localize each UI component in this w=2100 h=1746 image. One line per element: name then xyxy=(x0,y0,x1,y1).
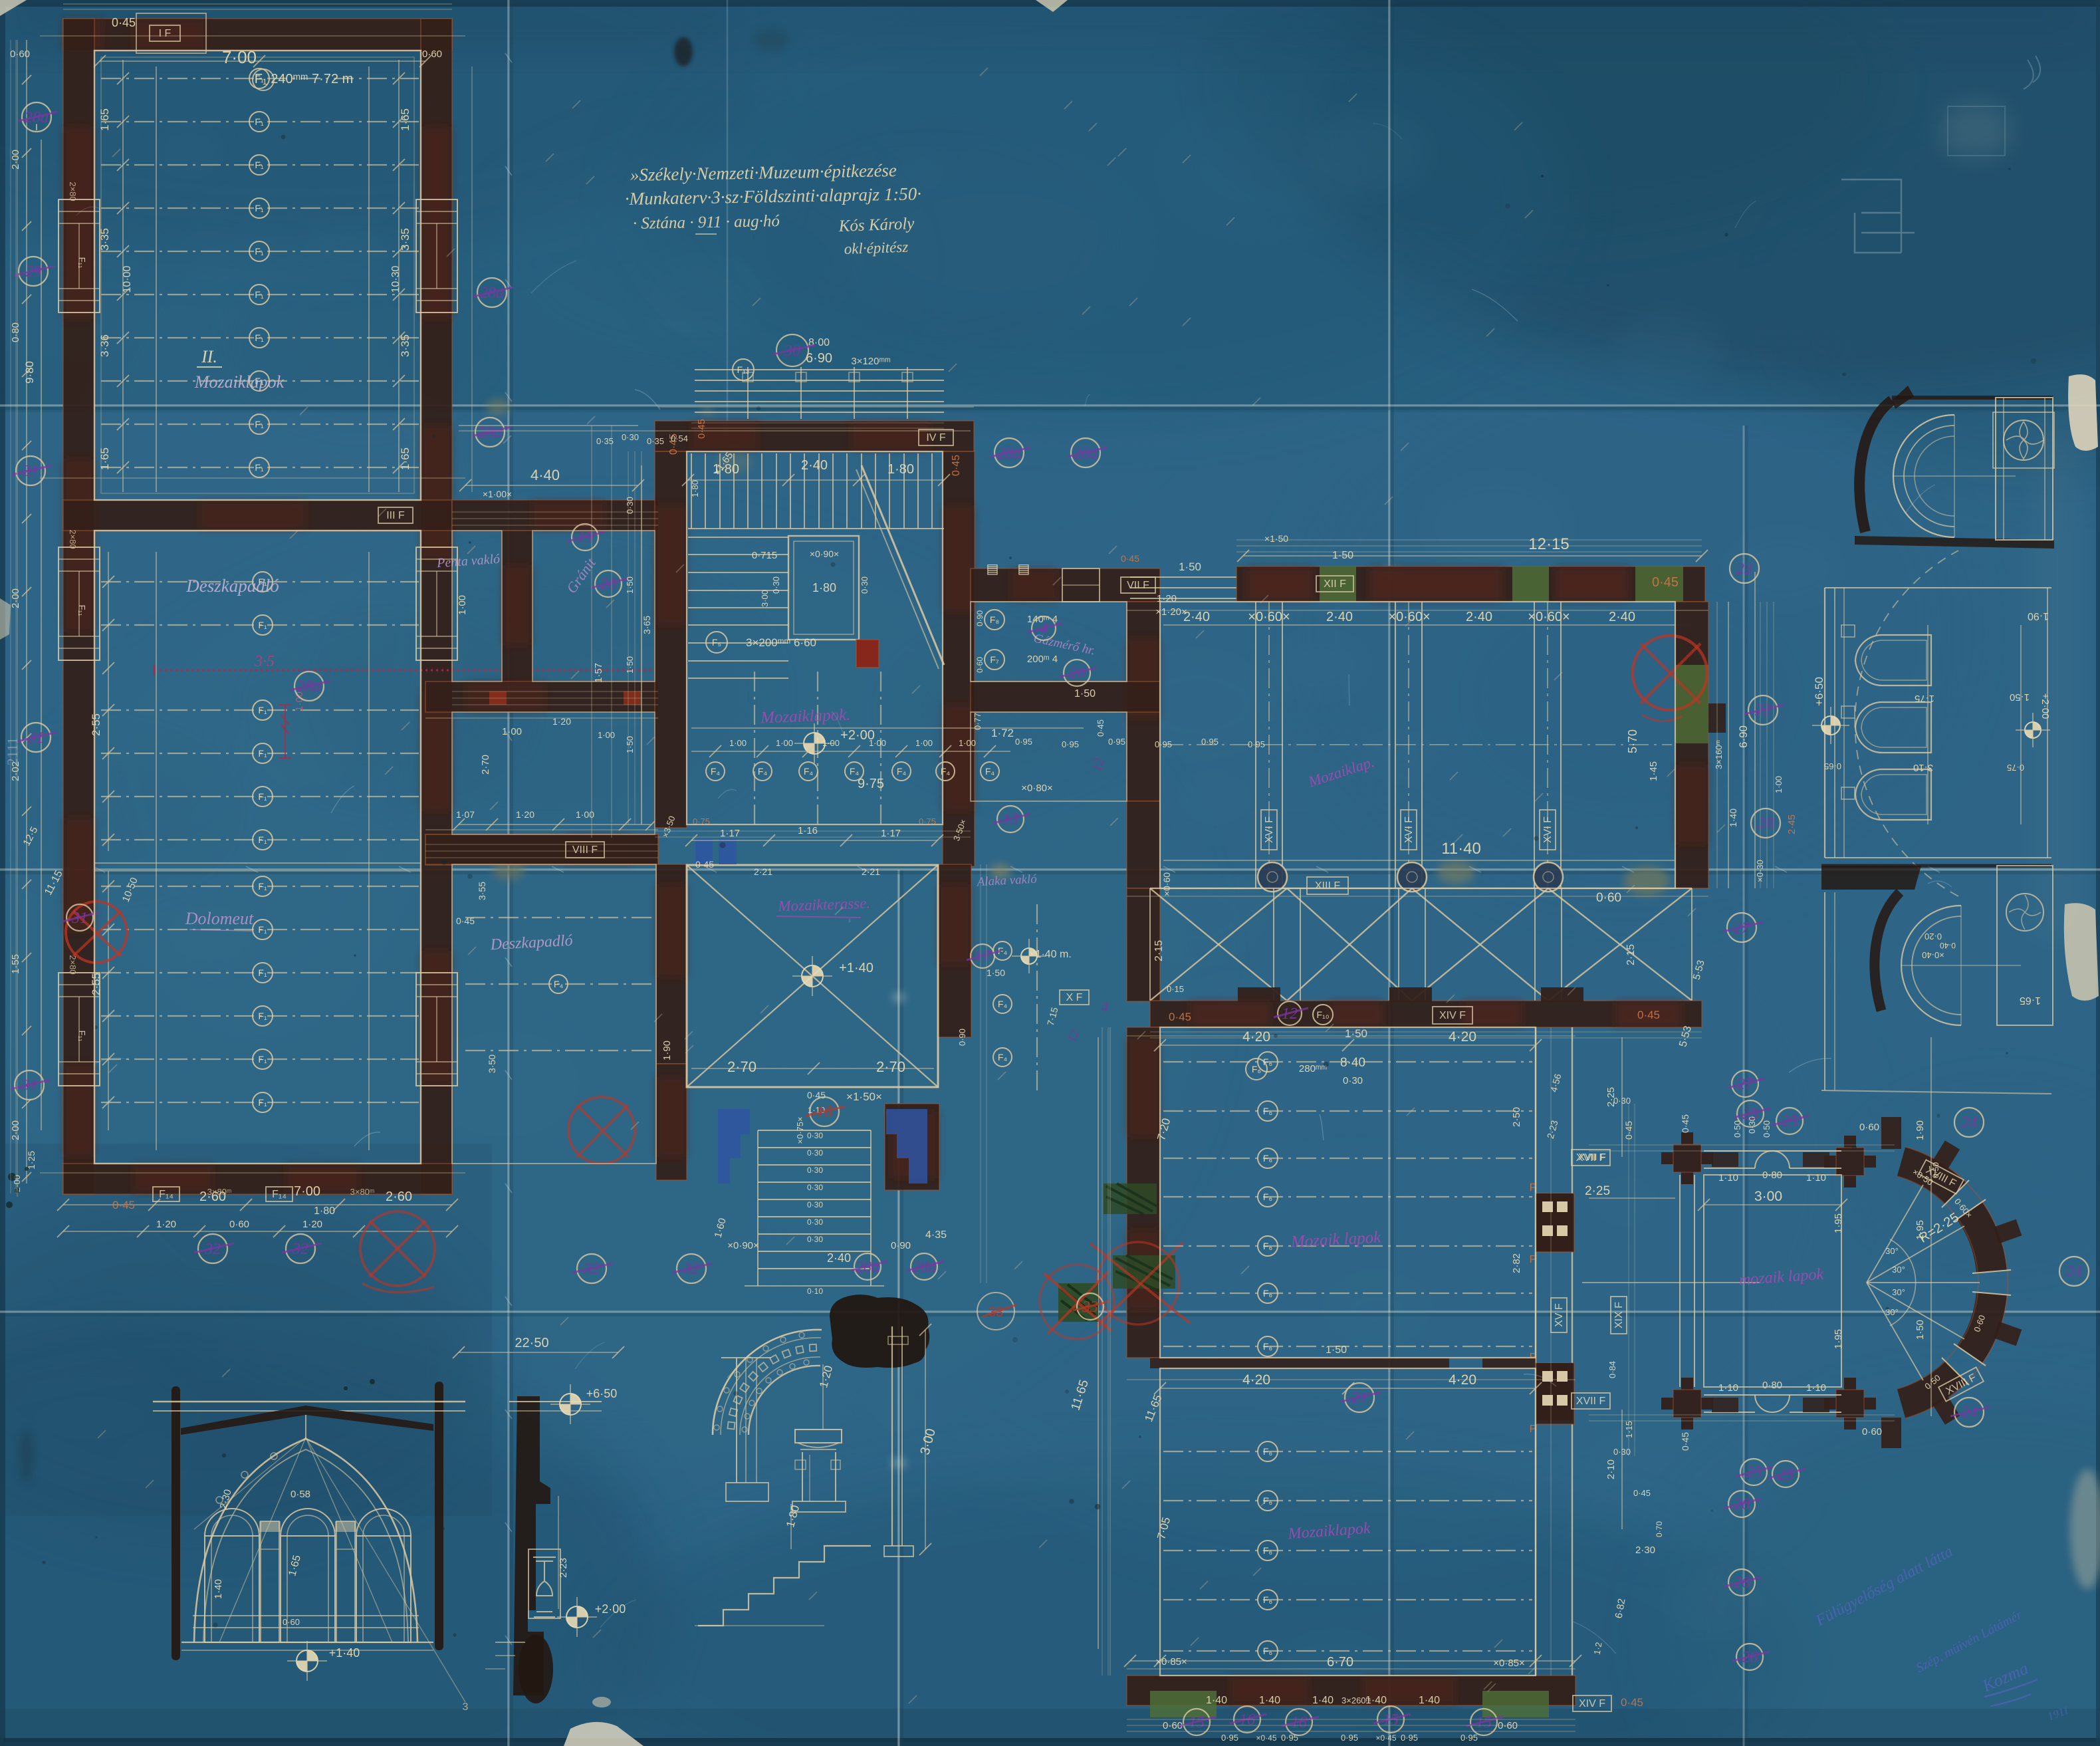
svg-text:F₄: F₄ xyxy=(758,766,768,777)
svg-text:6·70: 6·70 xyxy=(1327,1655,1353,1670)
svg-text:F₆: F₆ xyxy=(1263,1545,1272,1556)
svg-text:1·10: 1·10 xyxy=(1718,1172,1738,1184)
svg-text:2×80: 2×80 xyxy=(68,182,78,201)
svg-text:0·30: 0·30 xyxy=(807,1148,823,1158)
svg-text:0·95: 0·95 xyxy=(1281,1733,1298,1743)
svg-text:1·00: 1·00 xyxy=(959,738,976,748)
svg-text:1·50: 1·50 xyxy=(1074,688,1096,699)
svg-text:F₆: F₆ xyxy=(1263,1153,1272,1164)
svg-text:22·50: 22·50 xyxy=(515,1336,548,1350)
svg-text:1·40: 1·40 xyxy=(1312,1695,1334,1706)
svg-text:3×80ᵐ: 3×80ᵐ xyxy=(207,1187,232,1197)
svg-text:10·30: 10·30 xyxy=(390,265,402,293)
svg-text:F₁ 240ᵐᵐ 7·72 m: F₁ 240ᵐᵐ 7·72 m xyxy=(255,72,354,86)
svg-text:XIX F: XIX F xyxy=(1613,1302,1625,1328)
svg-text:F₄: F₄ xyxy=(897,766,907,777)
svg-text:0·95: 0·95 xyxy=(1015,737,1032,747)
svg-text:0·95: 0·95 xyxy=(1201,737,1219,747)
svg-text:×0·90×: ×0·90× xyxy=(727,1240,759,1251)
svg-text:F₁: F₁ xyxy=(255,419,264,430)
svg-text:XII F: XII F xyxy=(1324,578,1346,590)
svg-text:0·84: 0·84 xyxy=(1607,1361,1617,1378)
svg-text:F₆: F₆ xyxy=(1263,1057,1272,1067)
svg-text:1·00: 1·00 xyxy=(502,726,522,737)
svg-text:3·10: 3·10 xyxy=(1913,762,1933,773)
svg-text:2·40: 2·40 xyxy=(827,1251,851,1265)
svg-text:0·50: 0·50 xyxy=(1931,1162,1940,1178)
svg-text:Mozaiklapok.: Mozaiklapok. xyxy=(760,706,851,727)
svg-text:1·50: 1·50 xyxy=(1326,1344,1347,1356)
svg-text:F₁: F₁ xyxy=(255,160,264,170)
svg-text:+6·50: +6·50 xyxy=(586,1387,618,1400)
svg-text:F₄: F₄ xyxy=(804,766,814,777)
svg-text:2111: 2111 xyxy=(4,737,21,765)
svg-text:×1·50: ×1·50 xyxy=(1264,533,1288,544)
svg-text:280ᵐᵐ: 280ᵐᵐ xyxy=(1299,1063,1327,1074)
svg-text:1·50: 1·50 xyxy=(1179,561,1201,573)
svg-text:3·50: 3·50 xyxy=(487,1055,497,1073)
svg-text:F₇: F₇ xyxy=(990,654,999,665)
svg-text:2·15: 2·15 xyxy=(1625,944,1637,965)
svg-text:0·30: 0·30 xyxy=(807,1217,823,1227)
svg-text:1·95: 1·95 xyxy=(1833,1329,1844,1349)
svg-text:0·45: 0·45 xyxy=(112,16,136,29)
svg-text:2·15: 2·15 xyxy=(1153,940,1165,961)
svg-text:F₆: F₆ xyxy=(1263,1288,1272,1299)
svg-text:F₁: F₁ xyxy=(255,332,264,343)
svg-text:0·60: 0·60 xyxy=(422,49,442,60)
svg-text:F₁: F₁ xyxy=(255,462,264,473)
svg-text:F₁₁: F₁₁ xyxy=(77,257,87,269)
svg-text:0·45: 0·45 xyxy=(1633,1488,1651,1498)
svg-text:3·35: 3·35 xyxy=(98,228,111,251)
svg-text:30°: 30° xyxy=(1892,1287,1905,1297)
svg-text:3: 3 xyxy=(463,1701,469,1713)
svg-text:0·95: 0·95 xyxy=(1460,1733,1478,1743)
svg-text:0·90: 0·90 xyxy=(975,610,985,626)
svg-text:F₁: F₁ xyxy=(258,1011,267,1021)
svg-text:XVII F: XVII F xyxy=(1576,1396,1606,1407)
svg-text:0·10: 0·10 xyxy=(807,1287,823,1296)
svg-text:0·45: 0·45 xyxy=(695,859,714,870)
svg-text:1·57: 1·57 xyxy=(593,663,604,683)
svg-text:0·75: 0·75 xyxy=(2007,763,2024,773)
svg-text:×0·40: ×0·40 xyxy=(1922,950,1944,960)
svg-text:0·80: 0·80 xyxy=(1762,1380,1782,1391)
svg-text:VIII F: VIII F xyxy=(572,844,598,856)
svg-text:4: 4 xyxy=(1102,999,1109,1015)
svg-text:9·80: 9·80 xyxy=(23,361,36,384)
svg-text:2·40: 2·40 xyxy=(801,458,828,473)
svg-text:0·20: 0·20 xyxy=(1925,932,1942,941)
svg-text:F₁₁: F₁₁ xyxy=(77,605,87,616)
svg-text:F₁: F₁ xyxy=(255,116,264,127)
svg-text:X F: X F xyxy=(1066,992,1083,1003)
svg-text:I: I xyxy=(35,122,38,132)
svg-text:2·25: 2·25 xyxy=(1585,1184,1610,1198)
svg-text:0·65: 0·65 xyxy=(1824,761,1841,771)
svg-text:×1·00×: ×1·00× xyxy=(483,489,512,499)
svg-text:1·00: 1·00 xyxy=(729,738,747,748)
svg-text:1·50: 1·50 xyxy=(2010,691,2030,703)
svg-text:×0·85×: ×0·85× xyxy=(1493,1658,1525,1669)
svg-text:1·95: 1·95 xyxy=(1833,1213,1844,1233)
svg-text:1·07: 1·07 xyxy=(456,809,475,820)
svg-text:XVI F: XVI F xyxy=(1403,816,1415,843)
svg-text:F₈: F₈ xyxy=(990,614,999,625)
svg-text:1·80: 1·80 xyxy=(812,581,836,594)
svg-text:12·15: 12·15 xyxy=(1528,535,1569,553)
svg-text:0·54: 0·54 xyxy=(671,434,688,443)
svg-text:1·20: 1·20 xyxy=(156,1219,176,1230)
svg-text:IV F: IV F xyxy=(926,432,946,443)
svg-text:1·50: 1·50 xyxy=(625,736,635,753)
svg-text:30°: 30° xyxy=(1885,1246,1899,1256)
svg-text:0·15: 0·15 xyxy=(1167,984,1184,994)
svg-text:2·10: 2·10 xyxy=(1605,1459,1617,1479)
svg-text:XVI F: XVI F xyxy=(1264,816,1275,843)
svg-text:0·30: 0·30 xyxy=(622,432,639,442)
svg-text:0·30: 0·30 xyxy=(807,1183,823,1192)
svg-text:0·95: 0·95 xyxy=(1155,739,1172,749)
svg-text:F₁: F₁ xyxy=(258,1054,267,1064)
svg-text:Kós Károly: Kós Károly xyxy=(838,215,915,235)
svg-text:▤: ▤ xyxy=(1018,562,1030,576)
svg-text:3·00: 3·00 xyxy=(1754,1189,1782,1204)
svg-text:0·40: 0·40 xyxy=(1940,941,1956,950)
svg-text:0·45: 0·45 xyxy=(696,419,707,439)
svg-text:F₁: F₁ xyxy=(258,791,267,802)
svg-text:F₁₂: F₁₂ xyxy=(737,364,750,375)
svg-text:F₄: F₄ xyxy=(998,999,1008,1009)
svg-text:1·95: 1·95 xyxy=(1915,1220,1926,1240)
svg-text:0·45: 0·45 xyxy=(951,455,962,476)
svg-text:F₁: F₁ xyxy=(258,620,267,630)
svg-text:1·40: 1·40 xyxy=(1728,809,1738,827)
svg-text:okl·épitész: okl·épitész xyxy=(844,239,908,257)
svg-text:F₁₁: F₁₁ xyxy=(77,1031,87,1042)
svg-text:30°: 30° xyxy=(1892,1265,1905,1275)
svg-text:Dolomeut: Dolomeut xyxy=(185,909,254,928)
svg-text:5·70: 5·70 xyxy=(1626,729,1639,753)
svg-text:×0·45: ×0·45 xyxy=(1256,1733,1276,1743)
svg-text:1·90: 1·90 xyxy=(2028,610,2049,622)
svg-text:XIV F: XIV F xyxy=(1579,1698,1605,1709)
svg-text:0·45: 0·45 xyxy=(1680,1432,1691,1451)
svg-text:0·95: 0·95 xyxy=(1108,737,1125,747)
svg-text:1·40: 1·40 xyxy=(1206,1695,1227,1706)
svg-text:1·10: 1·10 xyxy=(1806,1172,1826,1184)
svg-text:2·50: 2·50 xyxy=(1511,1107,1522,1127)
svg-text:0·30: 0·30 xyxy=(807,1200,823,1209)
svg-text:F₅: F₅ xyxy=(712,637,721,648)
svg-text:F₁: F₁ xyxy=(258,924,267,935)
svg-text:F₁: F₁ xyxy=(255,203,264,213)
svg-text:3·00: 3·00 xyxy=(760,590,770,607)
svg-text:1·10: 1·10 xyxy=(1806,1382,1826,1394)
svg-text:2·45: 2·45 xyxy=(1786,814,1798,834)
svg-text:0·95: 0·95 xyxy=(1221,1733,1238,1743)
svg-text:2·60: 2·60 xyxy=(386,1189,412,1204)
svg-text:Deszkapadló: Deszkapadló xyxy=(185,576,279,596)
svg-text:3·65: 3·65 xyxy=(642,616,652,634)
svg-text:F₆: F₆ xyxy=(1263,1646,1272,1656)
svg-text:1·50: 1·50 xyxy=(625,656,635,674)
svg-text:Mozaiklapok: Mozaiklapok xyxy=(194,372,285,392)
svg-text:2·21: 2·21 xyxy=(862,866,880,877)
svg-text:F₆: F₆ xyxy=(1263,1594,1272,1605)
svg-text:1·65: 1·65 xyxy=(98,447,111,470)
svg-text:1·40: 1·40 xyxy=(1259,1695,1280,1706)
svg-text:XV F: XV F xyxy=(1554,1303,1565,1327)
svg-text:0·95: 0·95 xyxy=(1401,1733,1418,1743)
svg-text:2·70: 2·70 xyxy=(480,755,491,775)
svg-text:1·50: 1·50 xyxy=(987,967,1005,978)
svg-text:2·70: 2·70 xyxy=(727,1059,757,1075)
svg-text:0·45: 0·45 xyxy=(1121,553,1139,564)
svg-text:F₁: F₁ xyxy=(258,881,267,892)
svg-text:2·23: 2·23 xyxy=(558,1558,569,1578)
svg-text:F₆: F₆ xyxy=(1263,1106,1272,1116)
svg-text:1·90: 1·90 xyxy=(661,1041,673,1060)
svg-text:2·25: 2·25 xyxy=(1605,1087,1617,1107)
svg-text:XVII F: XVII F xyxy=(1576,1152,1606,1164)
svg-text:11·40: 11·40 xyxy=(1441,840,1481,858)
svg-text:2×80: 2×80 xyxy=(68,529,78,549)
svg-text:0·95: 0·95 xyxy=(1341,1733,1358,1743)
svg-text:1·90: 1·90 xyxy=(1915,1120,1926,1140)
svg-text:0·45: 0·45 xyxy=(1652,575,1679,590)
svg-text:7·00: 7·00 xyxy=(294,1184,320,1199)
svg-text:1·20: 1·20 xyxy=(302,1219,322,1230)
svg-text:0·45: 0·45 xyxy=(1169,1011,1191,1023)
svg-text:+2·00: +2·00 xyxy=(2040,693,2051,719)
svg-text:9·75: 9·75 xyxy=(858,777,884,791)
svg-text:XIII F: XIII F xyxy=(1315,880,1340,892)
svg-text:F₁₄: F₁₄ xyxy=(272,1189,287,1200)
svg-text:2×80: 2×80 xyxy=(68,955,78,974)
svg-text:+1·40: +1·40 xyxy=(329,1646,360,1660)
svg-text:3×200ᵐᵐ 6·60: 3×200ᵐᵐ 6·60 xyxy=(746,636,816,649)
svg-text:III F: III F xyxy=(386,510,405,521)
svg-text:F₆: F₆ xyxy=(1263,1241,1272,1251)
svg-text:+1·40: +1·40 xyxy=(839,961,874,975)
svg-text:1·65: 1·65 xyxy=(98,108,111,131)
svg-text:F₄: F₄ xyxy=(554,979,564,989)
svg-text:0·95: 0·95 xyxy=(1062,739,1079,749)
svg-text:F₁: F₁ xyxy=(258,705,267,715)
svg-text:1·00: 1·00 xyxy=(776,738,793,748)
svg-text:II.: II. xyxy=(201,347,217,366)
svg-text:+2·00: +2·00 xyxy=(595,1602,626,1616)
svg-text:F₆: F₆ xyxy=(1263,1341,1272,1352)
svg-text:0·45: 0·45 xyxy=(1637,1009,1660,1021)
svg-text:1·65: 1·65 xyxy=(2020,995,2041,1006)
svg-text:3×160ᵐ: 3×160ᵐ xyxy=(1714,740,1724,769)
svg-text:0·90: 0·90 xyxy=(891,1240,911,1251)
svg-text:1·10: 1·10 xyxy=(1718,1382,1738,1394)
svg-text:0·30: 0·30 xyxy=(807,1131,823,1140)
svg-text:F₁: F₁ xyxy=(258,834,267,845)
svg-text:2·21: 2·21 xyxy=(754,866,772,877)
svg-text:F₄: F₄ xyxy=(998,1052,1008,1062)
svg-text:0·35: 0·35 xyxy=(596,436,614,446)
svg-text:F₁: F₁ xyxy=(258,748,267,759)
svg-text:24: 24 xyxy=(2066,1263,2082,1281)
svg-text:2·40: 2·40 xyxy=(1326,610,1353,624)
svg-text:3·5: 3·5 xyxy=(254,653,275,670)
svg-text:F₄: F₄ xyxy=(850,766,860,777)
svg-text:3×260ᵐ: 3×260ᵐ xyxy=(1342,1695,1371,1705)
svg-text:0·70: 0·70 xyxy=(1655,1521,1664,1537)
svg-text:0·60: 0·60 xyxy=(1859,1122,1879,1133)
svg-text:1·45: 1·45 xyxy=(1648,761,1659,781)
svg-text:2·55: 2·55 xyxy=(90,713,102,736)
svg-text:F₁: F₁ xyxy=(255,246,264,257)
svg-text:0·30: 0·30 xyxy=(807,1235,823,1244)
svg-text:0·715: 0·715 xyxy=(752,550,777,561)
svg-text:1·50: 1·50 xyxy=(1915,1320,1926,1340)
svg-text:3·36: 3·36 xyxy=(98,334,111,357)
svg-text:0·30: 0·30 xyxy=(1343,1075,1363,1086)
svg-text:1·00: 1·00 xyxy=(869,738,886,748)
svg-text:0·58: 0·58 xyxy=(291,1489,310,1500)
svg-text:▤: ▤ xyxy=(987,562,999,576)
svg-text:0·45: 0·45 xyxy=(1096,719,1106,737)
svg-text:0·45: 0·45 xyxy=(1621,1696,1643,1709)
svg-text:×1·50×: ×1·50× xyxy=(846,1090,882,1103)
svg-text:23: 23 xyxy=(1736,561,1752,578)
svg-text:1·40: 1·40 xyxy=(213,1579,224,1599)
svg-text:0·90: 0·90 xyxy=(957,1029,967,1046)
svg-text:1·50: 1·50 xyxy=(625,576,635,594)
svg-text:F₁: F₁ xyxy=(258,1097,267,1108)
svg-text:F₆: F₆ xyxy=(1252,1064,1261,1074)
svg-text:×0·45: ×0·45 xyxy=(1375,1733,1396,1743)
svg-text:F₆: F₆ xyxy=(1263,1191,1272,1202)
svg-text:1·80: 1·80 xyxy=(887,462,914,477)
svg-text:XVI F: XVI F xyxy=(1542,816,1554,843)
svg-text:1·00: 1·00 xyxy=(915,738,933,748)
svg-text:1·25: 1·25 xyxy=(26,1151,37,1170)
svg-text:3·35: 3·35 xyxy=(399,228,411,251)
svg-text:I F: I F xyxy=(159,28,172,39)
svg-text:+6·50: +6·50 xyxy=(1813,677,1825,706)
svg-text:0·60: 0·60 xyxy=(283,1617,300,1627)
svg-text:1·00: 1·00 xyxy=(457,595,468,615)
svg-text:4·40: 4·40 xyxy=(530,467,560,483)
svg-text:F₁: F₁ xyxy=(255,289,264,300)
svg-text:0·60: 0·60 xyxy=(229,1219,249,1230)
svg-text:0·45: 0·45 xyxy=(1680,1114,1691,1133)
svg-text:1·80: 1·80 xyxy=(314,1205,335,1217)
svg-text:1·80: 1·80 xyxy=(690,480,700,497)
svg-text:2·40: 2·40 xyxy=(1609,610,1635,624)
svg-text:2·40: 2·40 xyxy=(1183,610,1210,624)
svg-text:F₆: F₆ xyxy=(1263,1495,1272,1506)
svg-text:0·60: 0·60 xyxy=(1596,891,1621,905)
svg-text:0·45: 0·45 xyxy=(112,1199,135,1211)
svg-text:1·65: 1·65 xyxy=(399,447,411,470)
svg-text:1·00: 1·00 xyxy=(1774,776,1784,793)
svg-text:×0·90×: ×0·90× xyxy=(810,549,839,559)
svg-text:2·40: 2·40 xyxy=(1466,610,1492,624)
svg-text:200ᵐ 4: 200ᵐ 4 xyxy=(1027,654,1058,665)
svg-text:VII F: VII F xyxy=(1127,580,1149,591)
svg-text:1·40: 1·40 xyxy=(1419,1695,1440,1706)
svg-text:0·30: 0·30 xyxy=(807,1166,823,1175)
svg-text:3×80ᵐ: 3×80ᵐ xyxy=(350,1187,375,1197)
svg-text:Mozaikterasse.: Mozaikterasse. xyxy=(777,895,870,915)
svg-text:1·20: 1·20 xyxy=(516,809,534,820)
svg-text:3·35: 3·35 xyxy=(399,334,411,357)
svg-text:1·00: 1·00 xyxy=(598,730,615,740)
svg-text:1·75: 1·75 xyxy=(1915,693,1934,704)
svg-text:2·55: 2·55 xyxy=(90,973,102,995)
svg-text:F₁: F₁ xyxy=(258,967,267,978)
svg-text:0·45: 0·45 xyxy=(456,916,475,926)
svg-text:2·70: 2·70 xyxy=(876,1059,905,1075)
svg-text:XIV F: XIV F xyxy=(1439,1010,1466,1021)
svg-text:· Sztána · 911 · aug·hó: · Sztána · 911 · aug·hó xyxy=(633,212,780,233)
svg-text:0·30: 0·30 xyxy=(860,576,870,594)
svg-text:F₁₄: F₁₄ xyxy=(159,1189,174,1200)
svg-text:2·30: 2·30 xyxy=(1635,1545,1655,1556)
svg-text:F₄: F₄ xyxy=(711,766,721,777)
svg-text:F₁₀: F₁₀ xyxy=(1316,1009,1329,1020)
svg-text:0·95: 0·95 xyxy=(1248,739,1265,749)
svg-text:8·40: 8·40 xyxy=(1340,1056,1365,1070)
svg-text:0·77: 0·77 xyxy=(973,713,983,730)
svg-text:1·72: 1·72 xyxy=(991,727,1014,739)
svg-text:0·30: 0·30 xyxy=(625,497,635,514)
svg-text:0·60: 0·60 xyxy=(1862,1426,1882,1437)
svg-text:F₄: F₄ xyxy=(985,766,995,777)
svg-text:3×120ᵐᵐ: 3×120ᵐᵐ xyxy=(851,356,890,367)
svg-text:0·35: 0·35 xyxy=(647,436,664,446)
svg-text:2·82: 2·82 xyxy=(1511,1253,1522,1273)
svg-text:6·90: 6·90 xyxy=(1737,725,1750,748)
svg-text:×0·60: ×0·60 xyxy=(1161,872,1172,896)
svg-text:0·50: 0·50 xyxy=(1762,1120,1772,1138)
svg-text:F₆: F₆ xyxy=(1263,1446,1272,1457)
svg-text:1·00: 1·00 xyxy=(822,738,840,748)
svg-text:6·90: 6·90 xyxy=(806,351,832,366)
svg-text:4·35: 4·35 xyxy=(925,1229,947,1241)
svg-text:0·60: 0·60 xyxy=(975,657,985,673)
svg-text:24: 24 xyxy=(1961,1114,1977,1132)
svg-text:×0·80×: ×0·80× xyxy=(1021,783,1053,794)
svg-text:3·55: 3·55 xyxy=(477,882,487,900)
svg-text:0·30: 0·30 xyxy=(771,576,781,594)
